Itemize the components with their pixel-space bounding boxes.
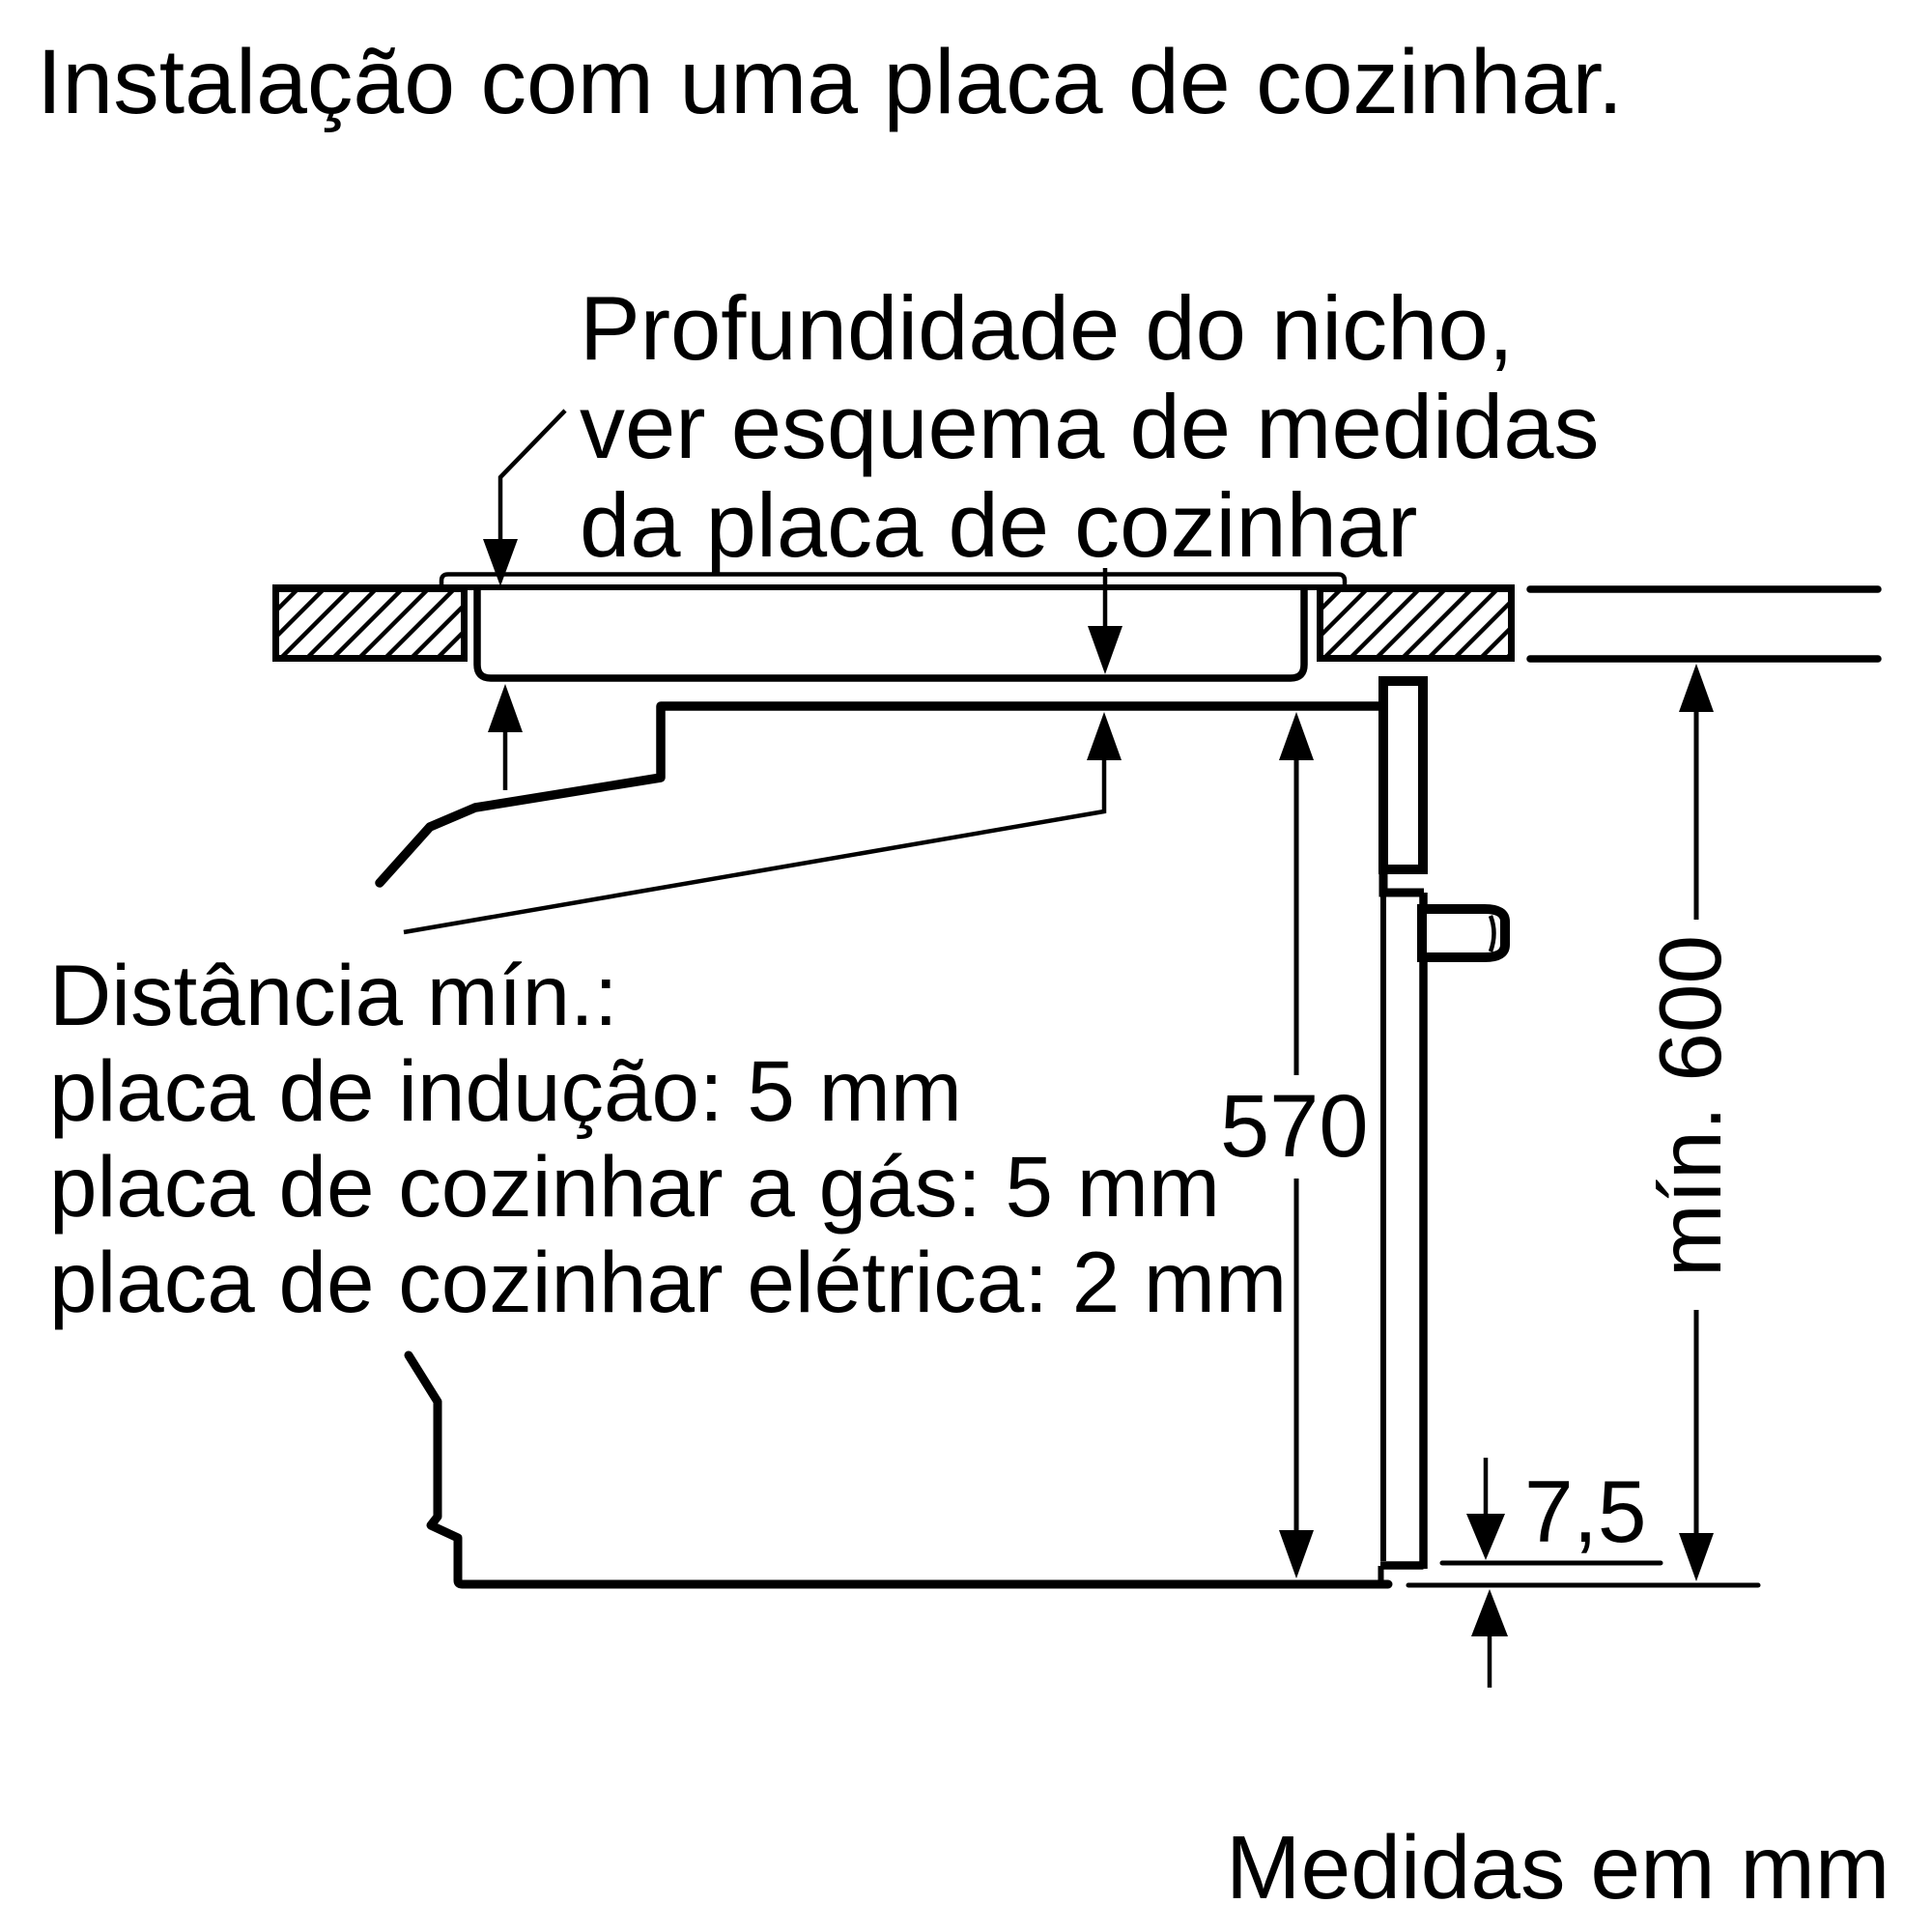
- svg-text:placa de cozinhar elétrica: 2: placa de cozinhar elétrica: 2 mm: [49, 1234, 1287, 1330]
- svg-text:ver esquema de medidas: ver esquema de medidas: [580, 376, 1599, 477]
- svg-text:Medidas em mm: Medidas em mm: [1226, 1817, 1889, 1918]
- svg-text:7,5: 7,5: [1524, 1463, 1647, 1561]
- svg-text:Profundidade do nicho,: Profundidade do nicho,: [580, 277, 1514, 379]
- svg-text:Distância mín.:: Distância mín.:: [49, 947, 618, 1043]
- svg-text:Instalação com uma placa de co: Instalação com uma placa de cozinhar.: [37, 31, 1623, 133]
- svg-text:placa de indução: 5 mm: placa de indução: 5 mm: [49, 1042, 962, 1139]
- svg-text:mín. 600: mín. 600: [1642, 935, 1740, 1277]
- svg-text:570: 570: [1220, 1077, 1369, 1176]
- svg-text:da placa de cozinhar: da placa de cozinhar: [580, 474, 1417, 576]
- svg-text:placa de cozinhar a gás: 5 mm: placa de cozinhar a gás: 5 mm: [49, 1138, 1220, 1235]
